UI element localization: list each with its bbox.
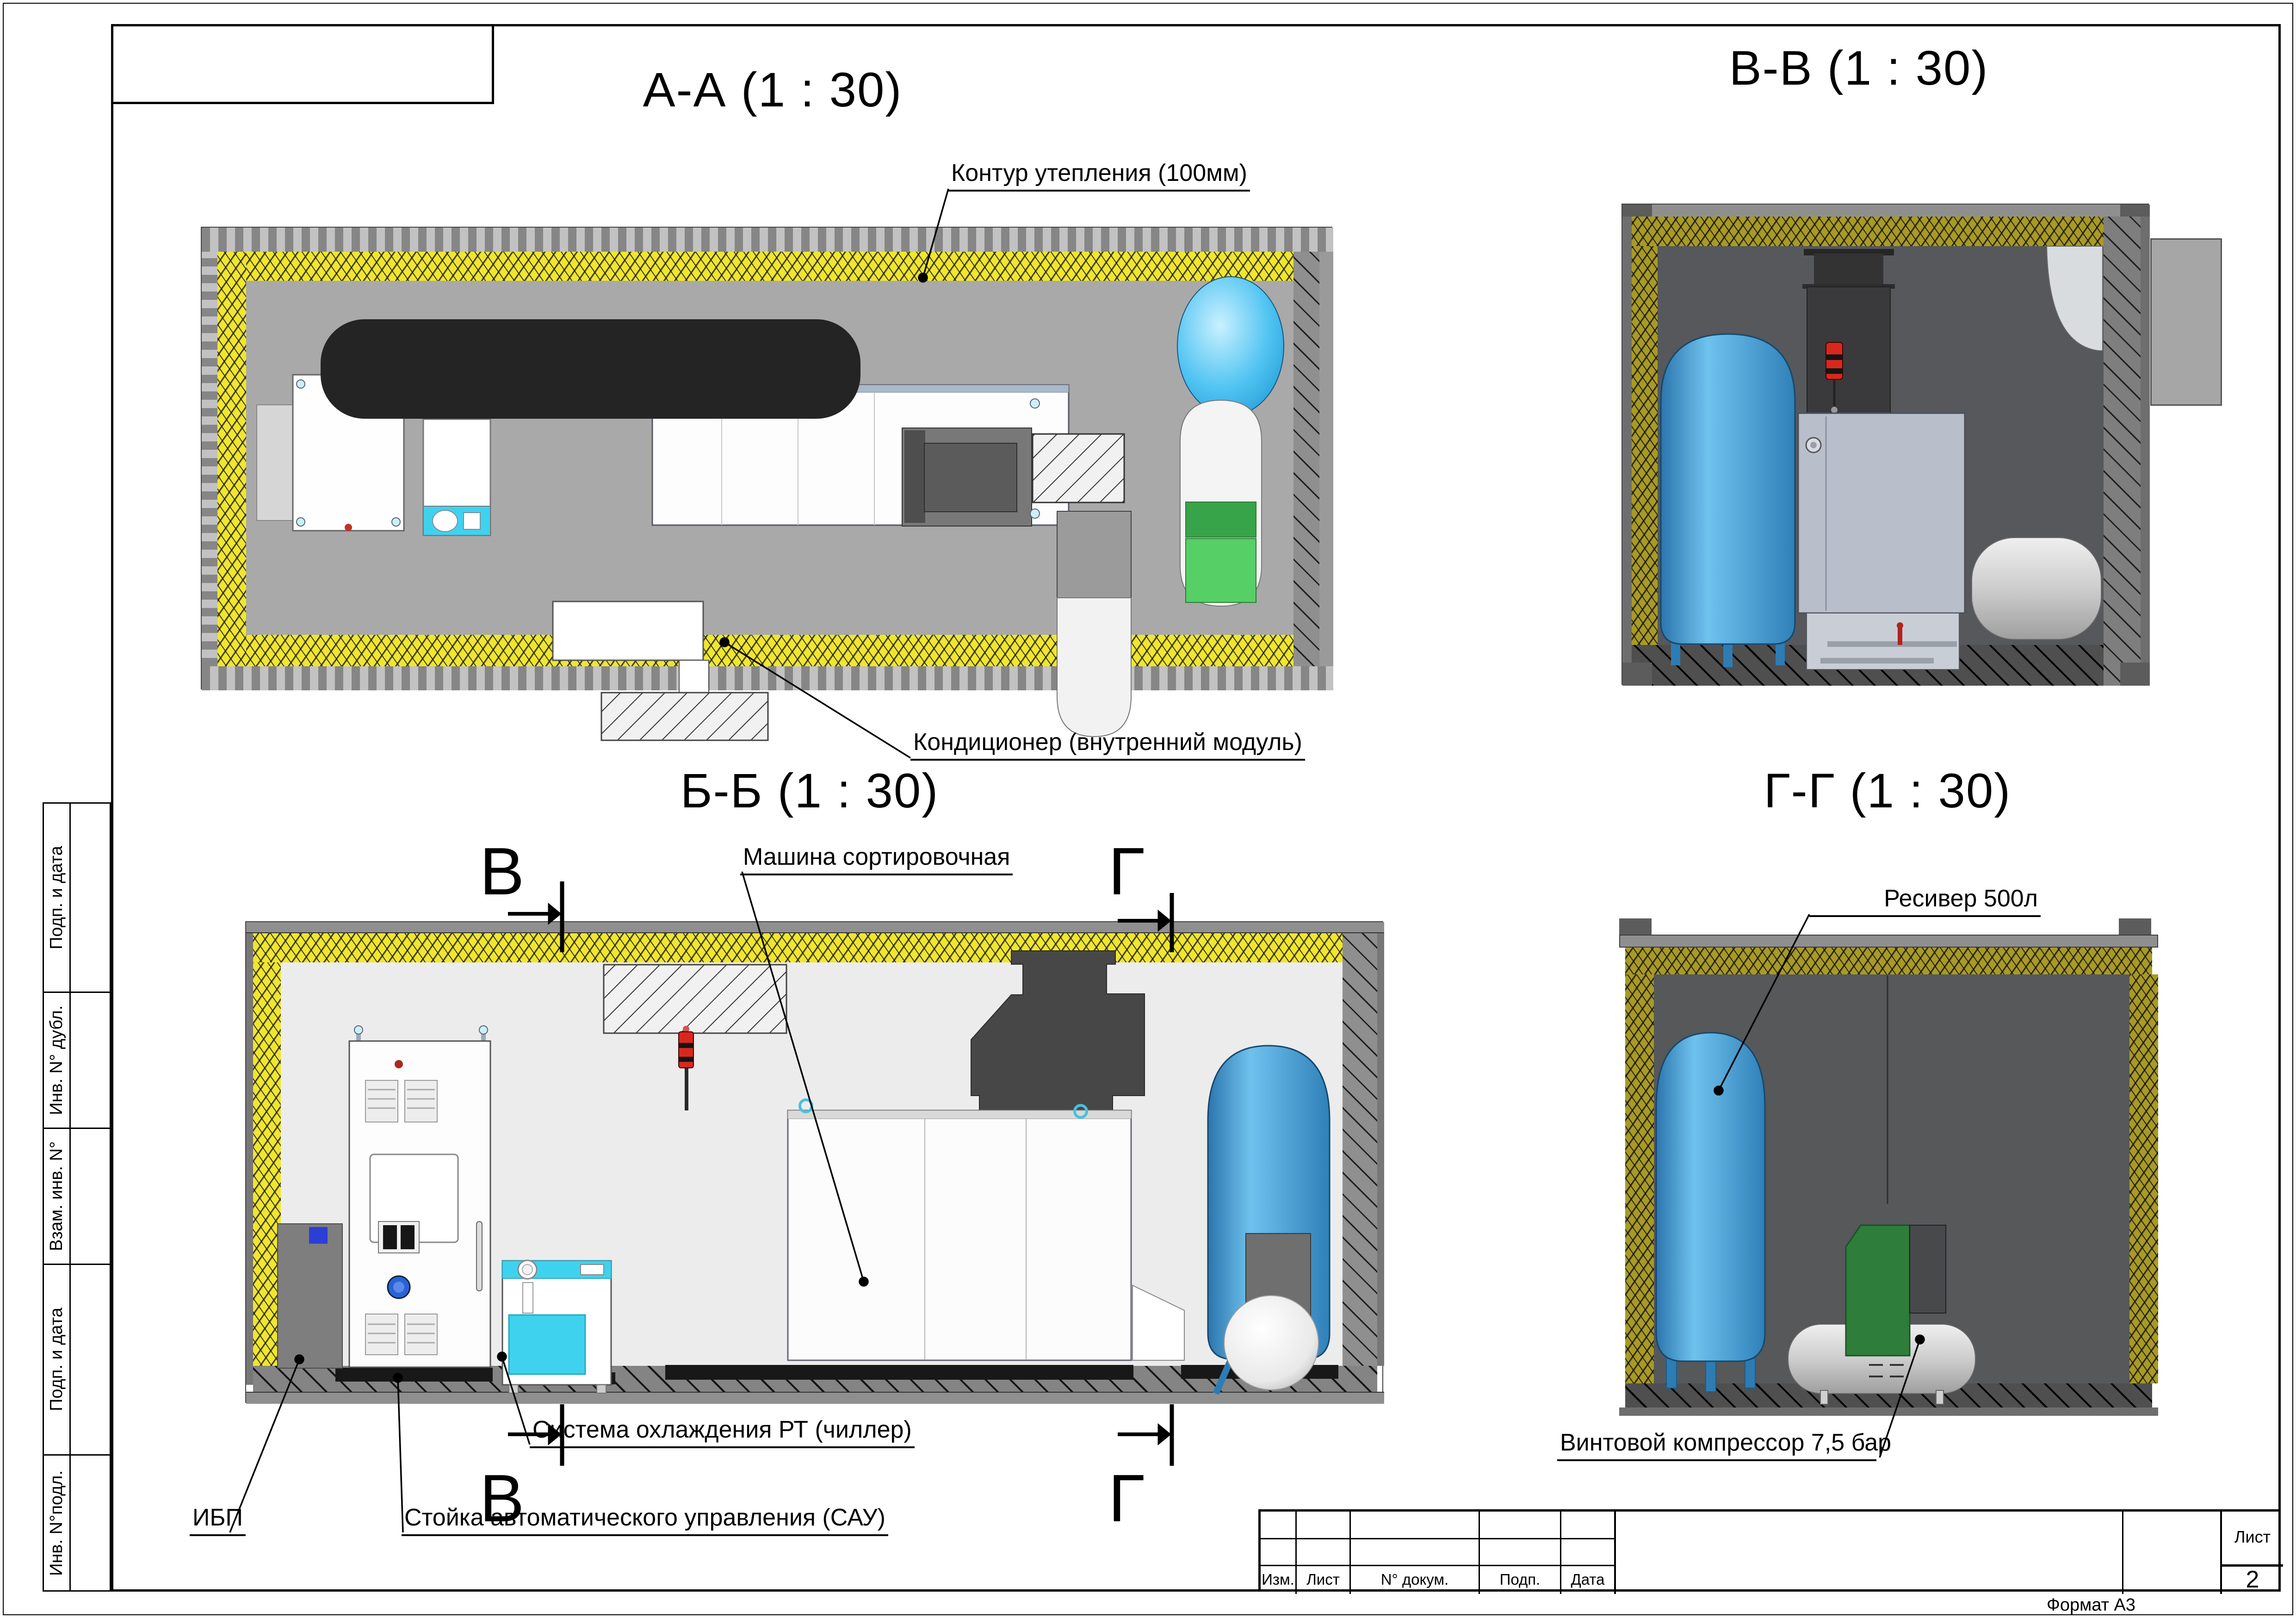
- title-block: Изм. Лист N° докум. Подп. Дата Лист 2: [1258, 1509, 2281, 1592]
- margin-label: Инв. N°подл.: [44, 1456, 69, 1590]
- floor: [1632, 645, 2104, 686]
- insulation-left: [217, 252, 246, 666]
- tb-col-izm: Изм.: [1261, 1566, 1295, 1594]
- margin-label: Инв. N° дубл.: [44, 993, 69, 1128]
- section-letter-g-top: Г: [1101, 833, 1152, 910]
- view-vv-container: [1621, 204, 2149, 685]
- label-receiver: Ресивер 500л: [1809, 885, 2041, 917]
- tb-sheet-number: 2: [2222, 1567, 2283, 1594]
- insulation-left: [253, 962, 281, 1366]
- label-compressor: Винтовой компрессор 7,5 бар: [1557, 1429, 1876, 1461]
- insulation-bottom: [246, 635, 1296, 666]
- section-letter-v-top: В: [477, 833, 527, 910]
- view-title-gg: Г-Г (1 : 30): [1702, 763, 2073, 819]
- floor: [253, 1366, 1377, 1392]
- margin-label: Взам. инв. N°: [44, 1129, 69, 1264]
- margin-cell: Взам. инв. N°: [43, 1128, 111, 1265]
- view-title-vv: В-В (1 : 30): [1674, 41, 2044, 96]
- label-ac-indoor: Кондиционер (внутренний модуль): [910, 728, 1305, 761]
- tb-col-list: Лист: [1297, 1566, 1349, 1594]
- margin-cell: Подп. и дата: [43, 1264, 111, 1456]
- label-insulation: Контур утепления (100мм): [948, 159, 1250, 192]
- view-gg-container: [1619, 918, 2158, 1416]
- margin-cell: Инв. N° дубл.: [43, 992, 111, 1129]
- floor: [1625, 1383, 2152, 1407]
- end-wall: [1343, 933, 1377, 1366]
- insulation-right: [2129, 974, 2158, 1383]
- format-note: Формат А3: [2026, 1595, 2156, 1615]
- stamp-box-top-left: [111, 24, 494, 104]
- insulation-top: [253, 933, 1343, 962]
- insulation-top: [1625, 948, 2152, 974]
- tb-sheet-label: Лист: [2222, 1512, 2283, 1564]
- tb-col-data: Дата: [1561, 1566, 1614, 1594]
- label-control-rack: Стойка автоматического управления (САУ): [402, 1504, 888, 1536]
- view-title-aa: А-А (1 : 30): [588, 62, 958, 118]
- view-title-bb: Б-Б (1 : 30): [625, 763, 995, 819]
- label-sorting-machine: Машина сортировочная: [740, 843, 1013, 875]
- margin-column: Подп. и дата Инв. N° дубл. Взам. инв. N°…: [43, 802, 111, 1592]
- margin-cell: Подп. и дата: [43, 802, 111, 993]
- label-ups: ИБП: [190, 1504, 246, 1536]
- insulation-left: [1625, 974, 1654, 1383]
- margin-cell: Инв. N°подл.: [43, 1454, 111, 1592]
- view-bb-container: [245, 921, 1383, 1403]
- view-aa-container: [201, 227, 1332, 689]
- tb-col-ndoc: N° докум.: [1351, 1566, 1479, 1594]
- tb-col-podp: Подп.: [1480, 1566, 1560, 1594]
- section-letter-v-bottom: В: [477, 1460, 527, 1537]
- end-wall: [1293, 252, 1319, 666]
- margin-label: Подп. и дата: [44, 1265, 69, 1454]
- margin-label: Подп. и дата: [44, 804, 69, 992]
- ac-outdoor-box: [2150, 238, 2222, 406]
- label-chiller: Система охлаждения РТ (чиллер): [530, 1416, 915, 1448]
- insulation-left: [1632, 246, 1658, 645]
- drawing-sheet: { "view_titles": { "aa": "А-А (1 : 30)",…: [0, 0, 2296, 1618]
- insulation-top: [1632, 217, 2104, 246]
- end-wall: [2104, 217, 2141, 686]
- section-letter-g-bottom: Г: [1101, 1460, 1152, 1537]
- insulation-top: [246, 252, 1296, 281]
